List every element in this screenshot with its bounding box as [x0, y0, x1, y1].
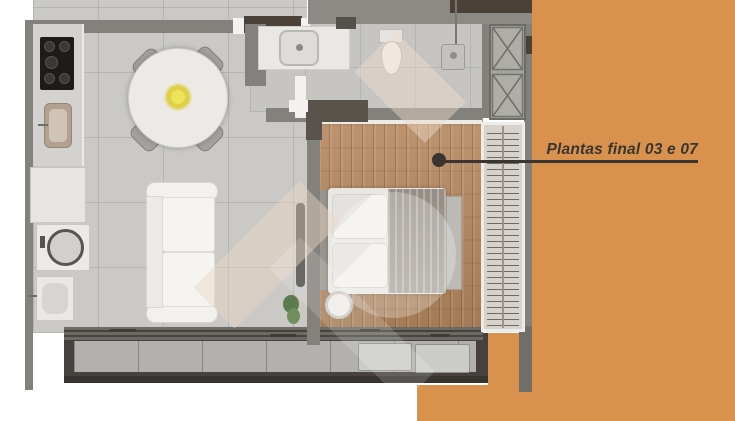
sliding-door-handle [270, 334, 296, 337]
cooktop-burner [44, 73, 55, 84]
bed-pillow [332, 194, 388, 239]
fridge [30, 167, 86, 223]
kitchen-sink-bowl [49, 109, 67, 142]
bed-pillow [332, 243, 388, 288]
sofa-back [146, 196, 163, 308]
top-wall-dark-strip [450, 0, 532, 13]
bed-blanket [388, 189, 446, 293]
annotation-label: Plantas final 03 e 07 [540, 141, 698, 159]
bathroom-door [295, 76, 306, 118]
washer-drum [47, 229, 84, 266]
cooktop-burner [45, 56, 58, 69]
bathroom-niche [336, 17, 356, 29]
headboard-cabinet [306, 100, 368, 122]
accent-panel-bottom [417, 385, 532, 421]
sliding-door-handle [110, 329, 136, 332]
wall-corner-block [306, 122, 322, 140]
balcony-planter [358, 343, 412, 371]
shaft-hatch [489, 24, 526, 120]
door-jamb [233, 18, 244, 34]
bed-headboard [320, 190, 328, 290]
pouf [325, 291, 353, 319]
tv-panel [296, 203, 305, 287]
table-flowers [164, 83, 192, 111]
bed-bench [446, 196, 462, 290]
shower-drain [450, 52, 457, 59]
sofa-cushion [162, 197, 215, 252]
sliding-door-handle [360, 329, 380, 332]
sliding-door-handle [430, 334, 450, 337]
bedroom-left-wall [307, 138, 320, 345]
shower-pipe [455, 0, 457, 46]
right-wall-lower [519, 326, 532, 392]
kitchen-faucet [38, 124, 48, 126]
cooktop-burner [44, 41, 55, 52]
vanity-faucet [296, 44, 303, 51]
cooktop-burner [59, 41, 70, 52]
cooktop-burner [59, 73, 70, 84]
balcony-edge [64, 376, 488, 383]
accent-panel-right [532, 0, 735, 421]
plant [287, 308, 300, 324]
laundry-tub-basin [42, 283, 68, 314]
sofa-cushion [162, 252, 215, 307]
closet-rail-bar [502, 126, 504, 328]
laundry-faucet [28, 295, 37, 297]
floorplan-image: Plantas final 03 e 07 [0, 0, 735, 421]
balcony-planter [415, 344, 470, 373]
washer-panel [40, 236, 45, 248]
leader-line [439, 160, 698, 163]
